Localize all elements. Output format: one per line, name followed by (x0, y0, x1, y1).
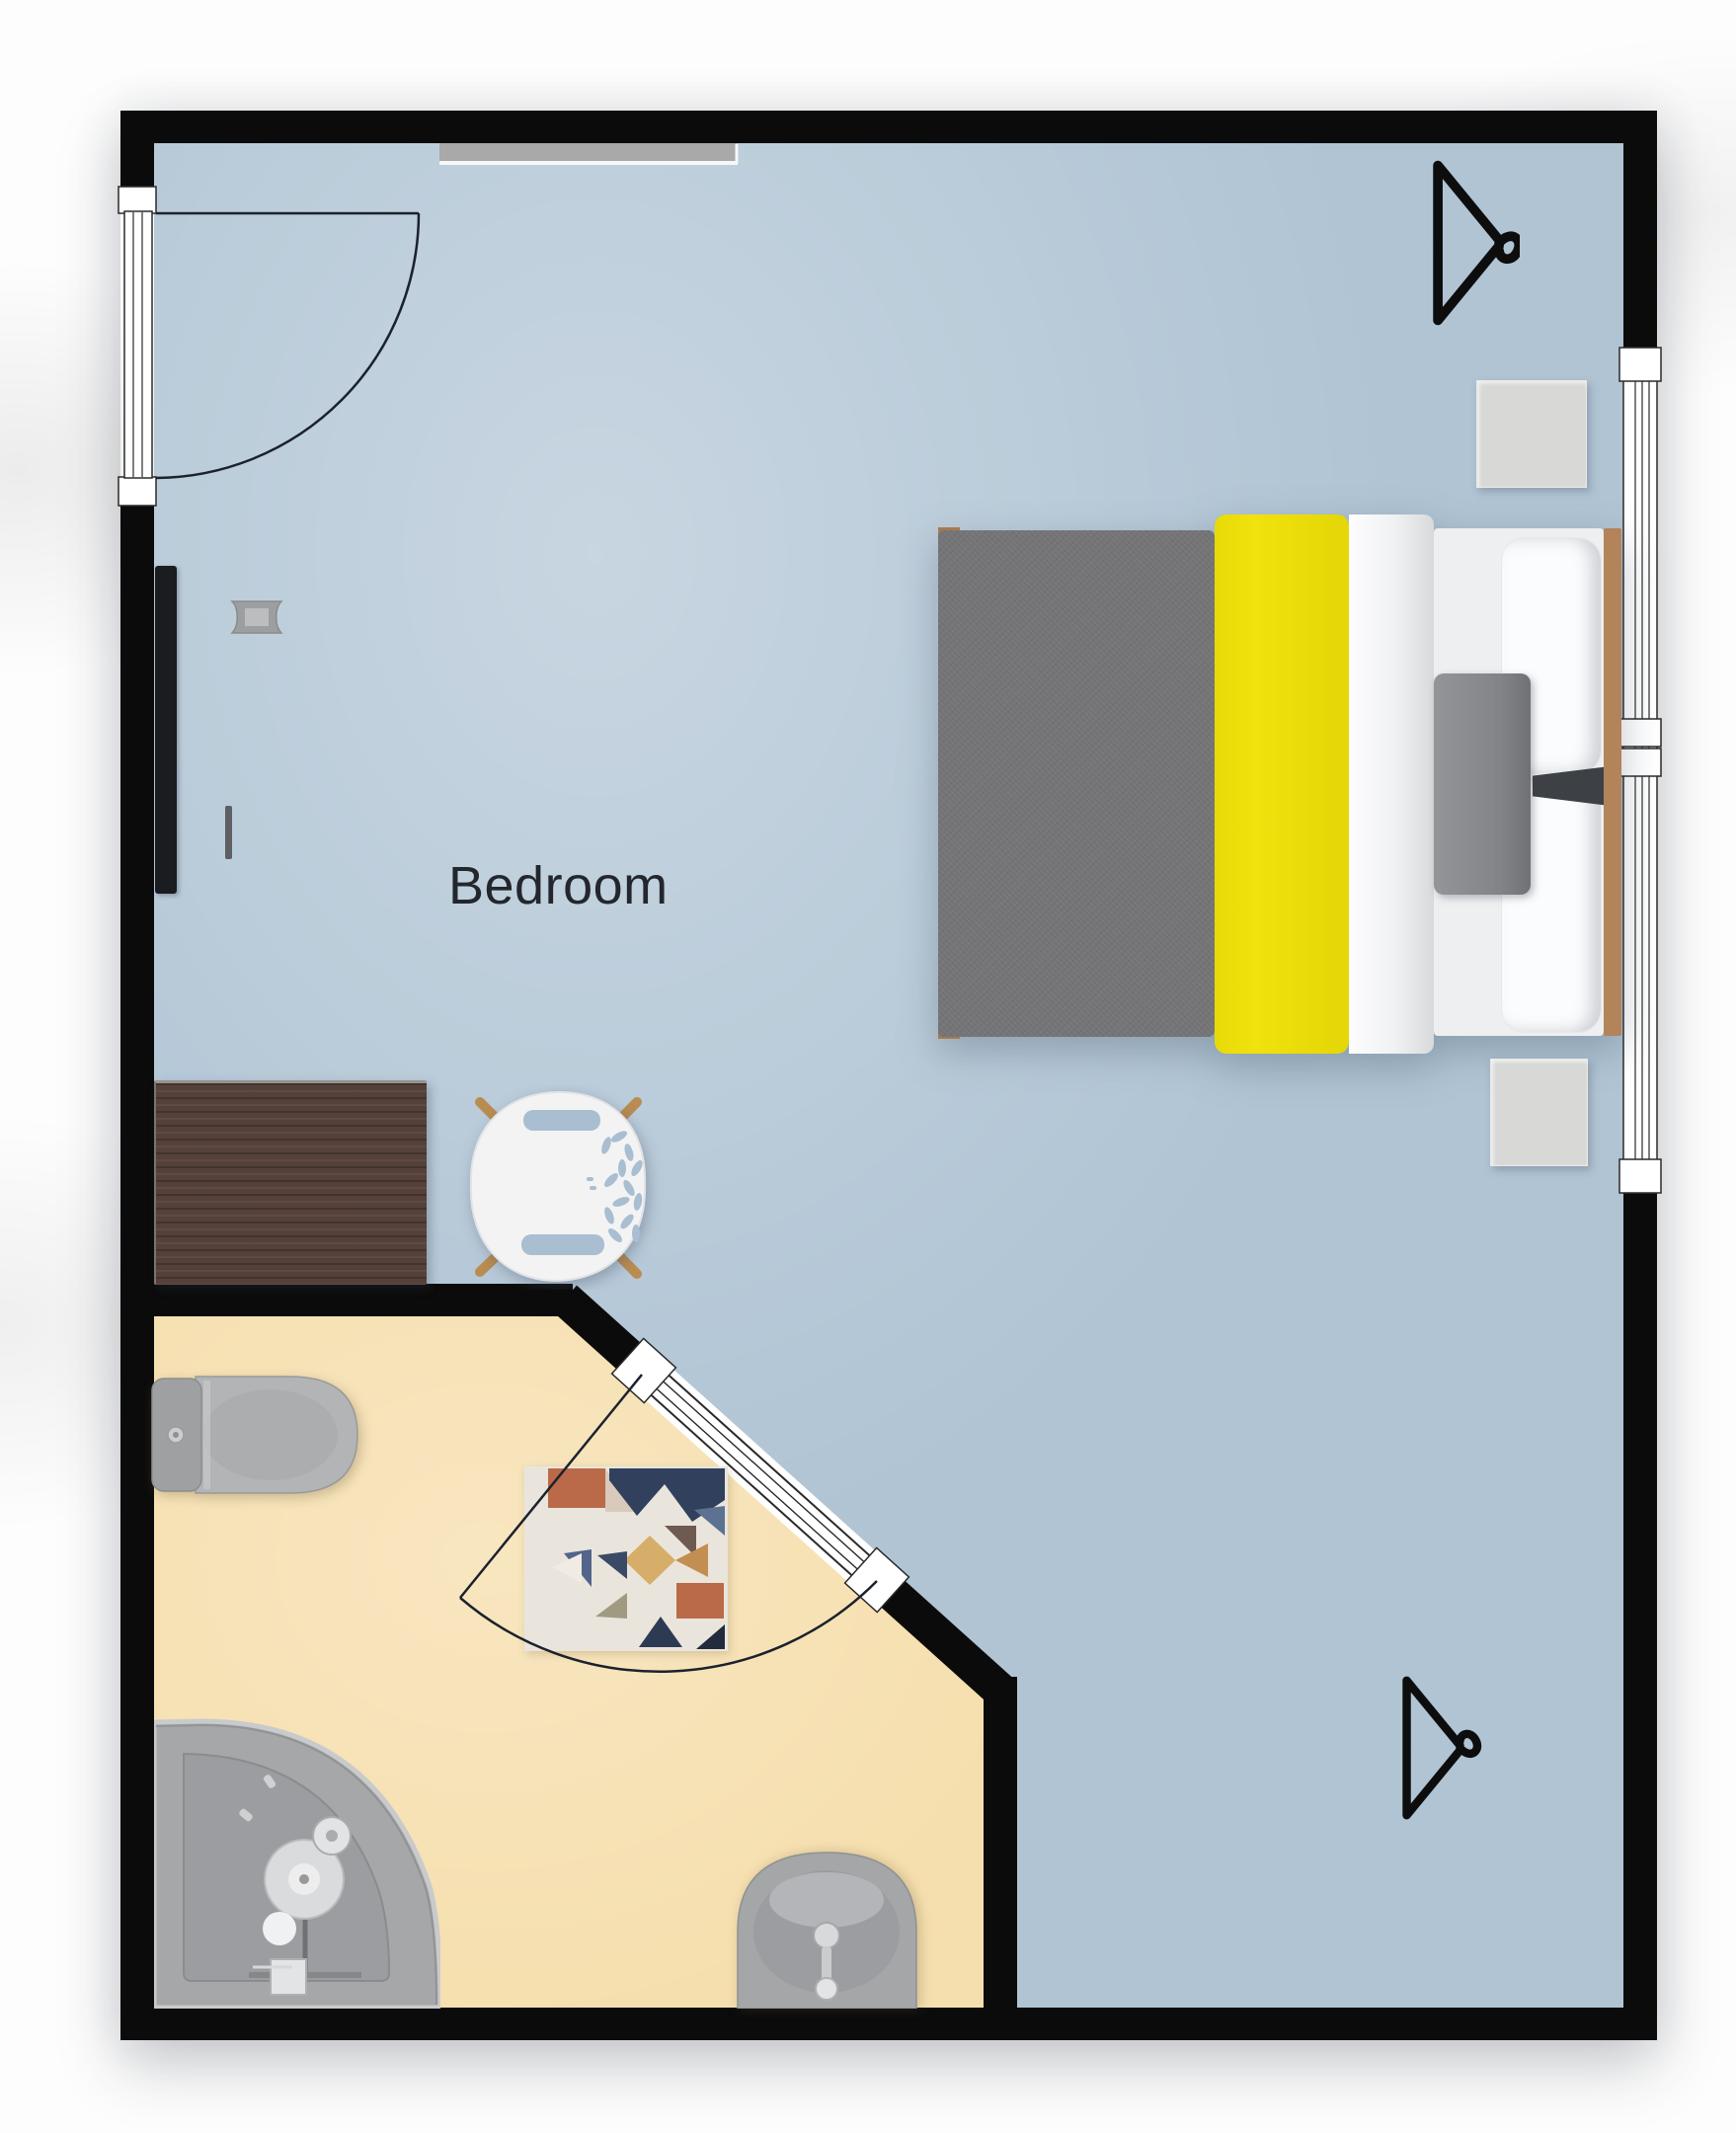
wall-bottom[interactable] (120, 2008, 1657, 2040)
sink-faucet (814, 1923, 839, 1948)
bed-duvet-white (1349, 514, 1434, 1054)
bed-duvet-yellow (1215, 514, 1349, 1054)
hanger-icon-bottom[interactable] (1388, 1669, 1483, 1827)
sink[interactable] (730, 1847, 924, 2009)
right-window[interactable] (1619, 348, 1661, 1193)
nightstand-bottom[interactable] (1490, 1059, 1588, 1166)
entry-door-leaf[interactable] (124, 211, 152, 478)
wall-left-upper[interactable] (120, 111, 154, 190)
bed-pillow-gray (1434, 673, 1531, 895)
wall-left-lower[interactable] (120, 506, 154, 2040)
rug[interactable] (524, 1466, 728, 1651)
wardrobe-rail[interactable] (439, 143, 738, 163)
chair-slot-top (523, 1110, 600, 1131)
bathroom-wall-right[interactable] (984, 1677, 1017, 2008)
shower[interactable] (154, 1716, 440, 2009)
toilet-bowl-inner (203, 1389, 338, 1480)
shower-soap-dish (263, 1912, 296, 1945)
chair-slot-bottom (521, 1234, 604, 1255)
nightstand-top[interactable] (1476, 380, 1587, 488)
wall-right-upper[interactable] (1623, 111, 1657, 348)
bed-headboard (1604, 528, 1621, 1036)
desk[interactable] (154, 1080, 427, 1285)
tv[interactable] (155, 566, 177, 894)
hanger-icon-top[interactable] (1423, 152, 1520, 334)
entry-door[interactable] (118, 187, 156, 506)
wall-right-lower[interactable] (1623, 1193, 1657, 2040)
bed-blanket-gray (938, 530, 1215, 1037)
toilet[interactable] (150, 1373, 359, 1498)
room-label: Bedroom (448, 855, 669, 916)
bed[interactable] (936, 512, 1623, 1055)
desk-chair[interactable] (452, 1084, 665, 1290)
wall-top[interactable] (120, 111, 1657, 143)
light-switch[interactable] (225, 806, 232, 859)
wall-light[interactable] (230, 599, 283, 635)
